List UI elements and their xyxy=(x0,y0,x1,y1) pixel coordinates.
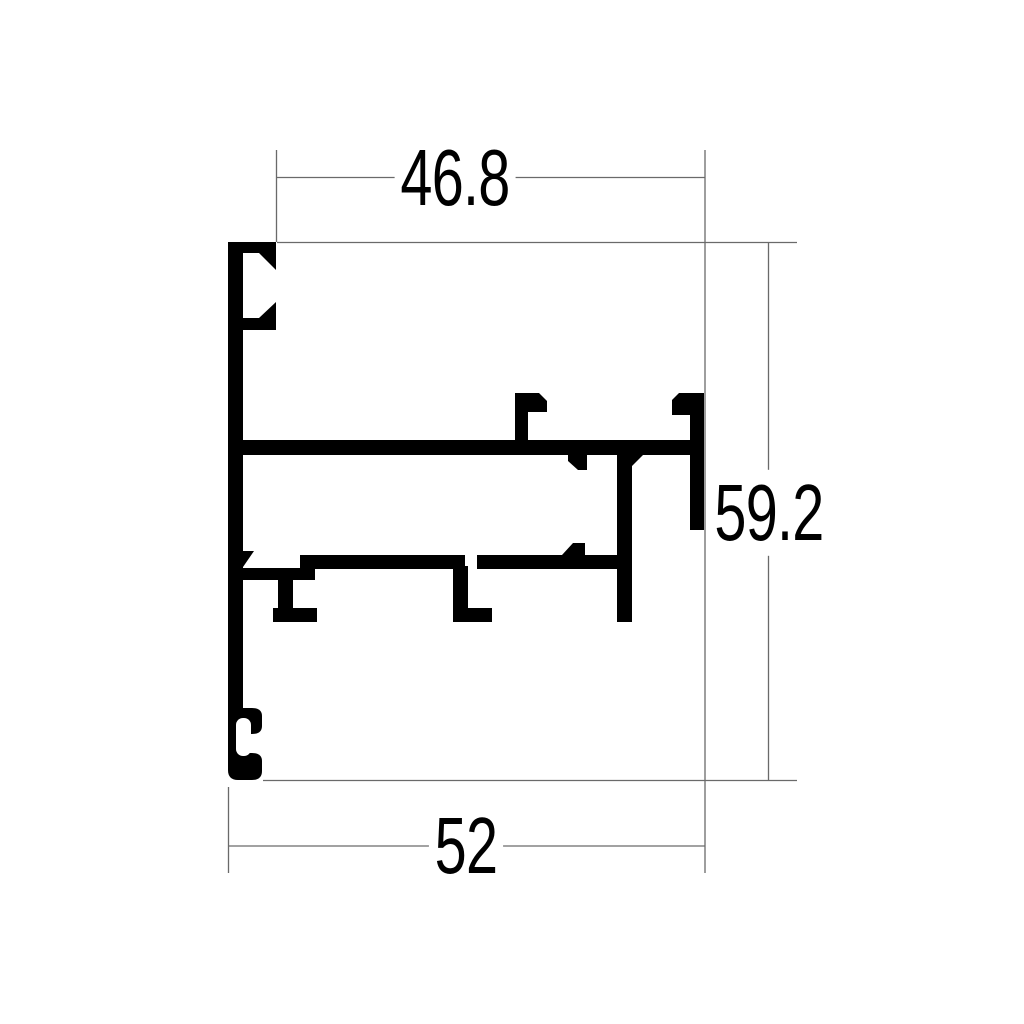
profile-web-gasket-tooth xyxy=(568,455,587,470)
profile-bottom-channel-hollow xyxy=(236,718,251,756)
profile-shelf-right xyxy=(477,555,620,569)
profile-top-channel-lower-jaw xyxy=(242,302,276,330)
profile-partition-fillet xyxy=(632,455,643,466)
profile-right-wall xyxy=(690,393,704,530)
profile-top-channel-upper-jaw xyxy=(243,242,276,270)
dimension-label-bottom-width: 52 xyxy=(429,803,503,889)
dimension-label-top-width: 46.8 xyxy=(395,135,516,221)
profile-foot-hook-left xyxy=(273,578,317,622)
profile-main-web xyxy=(242,440,704,455)
profile-foot-hook-right xyxy=(453,566,492,622)
drawing-canvas: 46.8 59.2 52 xyxy=(0,0,1024,1024)
profile-bottom-channel-lower-jaw xyxy=(243,753,262,780)
dimension-label-right-height: 59.2 xyxy=(709,470,830,556)
profile-partition xyxy=(617,455,632,622)
profile-shelf-left xyxy=(242,555,465,580)
profile-outline xyxy=(228,242,704,780)
profile-right-wall-cap xyxy=(672,393,690,415)
profile-wall-tooth xyxy=(243,551,254,567)
profile-left-wall xyxy=(228,242,243,780)
dimension-lines xyxy=(229,178,769,847)
profile-shelf-gasket-tooth xyxy=(562,543,585,555)
